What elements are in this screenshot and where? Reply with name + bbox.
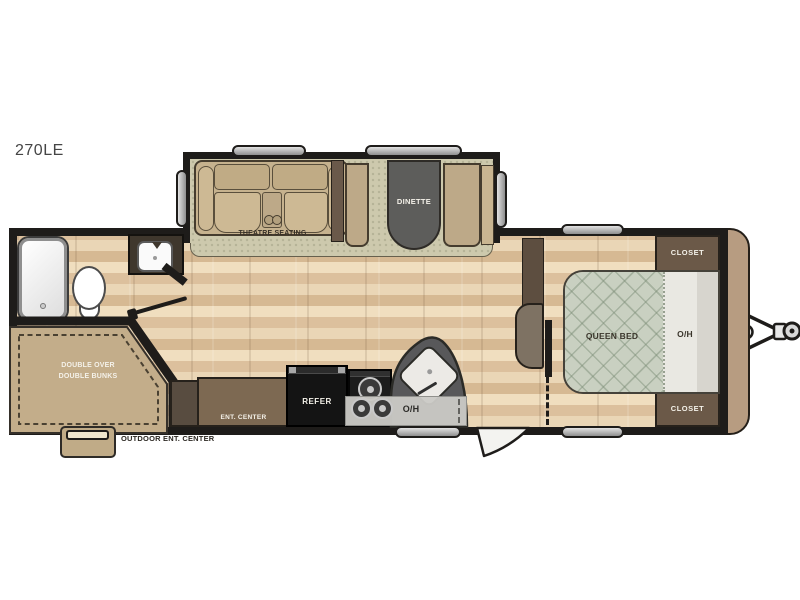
bunks-label-line2: DOUBLE BUNKS <box>38 373 138 381</box>
outdoor-ent-center <box>60 426 116 458</box>
theatre-seating-sofa <box>194 160 348 236</box>
entry-door-swing <box>469 421 541 463</box>
shower-drain <box>40 303 46 309</box>
grab-handle <box>395 426 461 438</box>
outdoor-ent-center-label: OUTDOOR ENT. CENTER <box>121 435 221 444</box>
outdoor-ent-center-panel <box>66 430 109 440</box>
sink-drain <box>153 256 157 260</box>
bedroom-overhead-label: O/H <box>663 330 707 340</box>
ent-center-cabinet-step <box>170 380 199 427</box>
bedroom-wall-stub <box>545 320 552 377</box>
stove-burner <box>351 398 372 419</box>
bedroom-cabinet <box>522 238 544 306</box>
overhead-cabinet-edge <box>458 399 460 423</box>
faucet-icon <box>152 242 162 249</box>
slideout-handle <box>176 170 188 227</box>
toilet-bowl <box>72 266 106 310</box>
faucet-lever-icon <box>417 381 437 395</box>
dinette-bench-back <box>481 165 494 245</box>
bedroom-sliding-door-track <box>546 377 549 425</box>
dinette-table: DINETTE <box>387 160 441 250</box>
refrigerator-hinge <box>338 367 345 373</box>
dinette-bench-left <box>345 163 369 247</box>
queen-bed-label: QUEEN BED <box>567 332 657 342</box>
kitchen-overhead-label: O/H <box>393 404 429 414</box>
sink-drain <box>426 368 433 375</box>
sofa-back-cushion <box>214 164 270 190</box>
ent-center-cabinet: ENT. CENTER <box>197 377 290 427</box>
bunks-label-line1: DOUBLE OVER <box>38 362 138 370</box>
refrigerator-label: REFER <box>288 397 346 406</box>
slideout-handle <box>365 145 462 157</box>
sofa-seat-cushion <box>284 192 328 233</box>
shower <box>19 238 67 320</box>
stove-burner <box>372 398 393 419</box>
slideout-handle <box>495 171 507 228</box>
ent-center-label: ENT. CENTER <box>199 414 288 421</box>
closet-top: CLOSET <box>655 235 720 272</box>
dinette-label: DINETTE <box>389 198 439 207</box>
grab-handle <box>561 224 624 236</box>
dinette-divider-cabinet <box>331 160 344 242</box>
closet-top-label: CLOSET <box>671 249 704 258</box>
refrigerator-hinge <box>289 367 296 373</box>
slideout-handle <box>232 145 306 157</box>
bedroom-dresser-curved <box>515 303 544 369</box>
model-number-label: 270LE <box>15 142 64 160</box>
bathroom-vanity <box>128 234 184 275</box>
sofa-armrest-left <box>198 166 214 231</box>
sofa-back-cushion <box>272 164 328 190</box>
sofa-console <box>262 192 282 228</box>
sofa-seat-cushion <box>214 192 261 233</box>
refrigerator: REFER <box>286 365 348 427</box>
dinette-bench-right <box>443 163 481 247</box>
closet-bottom-label: CLOSET <box>671 405 704 414</box>
cupholder <box>272 215 282 225</box>
grab-handle <box>561 426 624 438</box>
theatre-seating-label: THEATRE SEATING <box>225 230 320 238</box>
floor-plan-canvas: 270LE THEATRE SEATING DINETTE <box>0 0 800 600</box>
closet-bottom: CLOSET <box>655 392 720 427</box>
